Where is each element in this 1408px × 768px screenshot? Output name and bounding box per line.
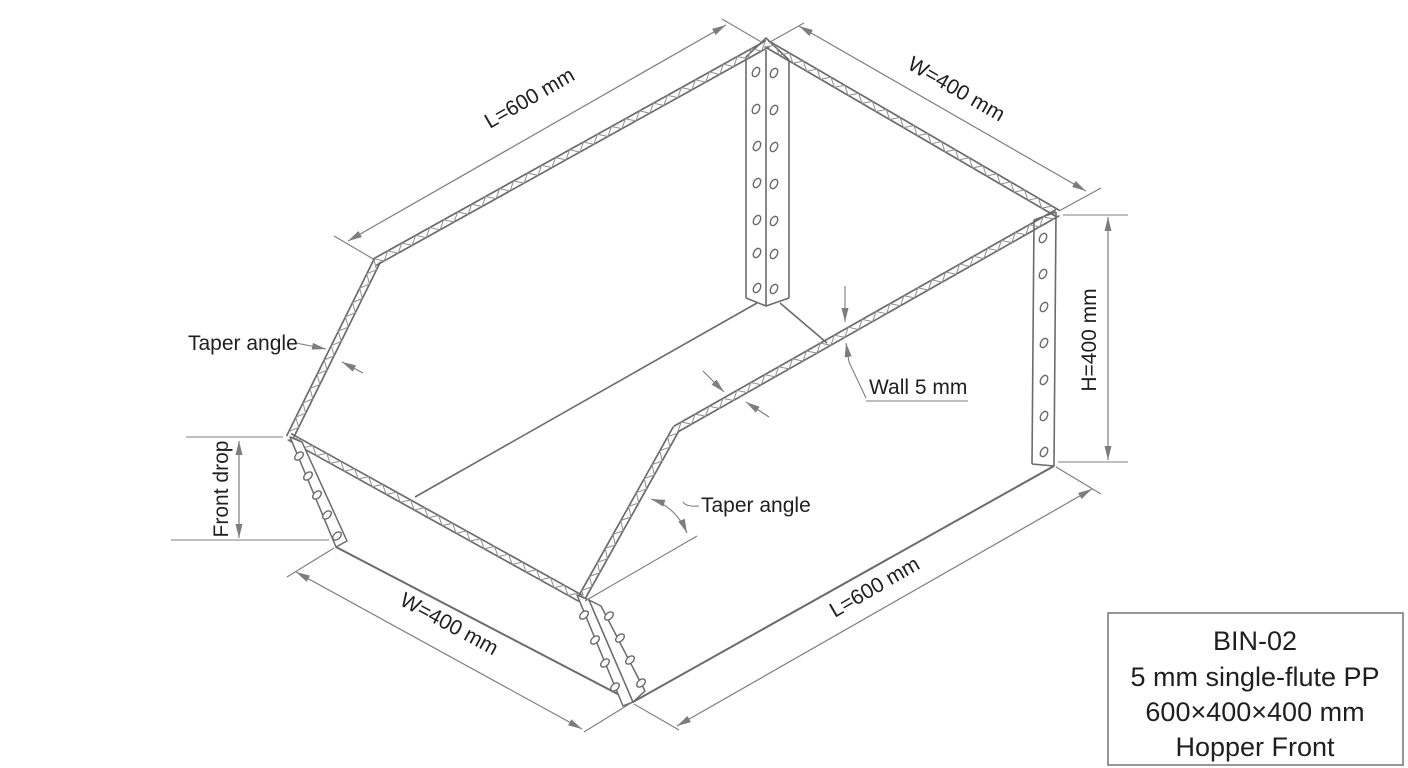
title-front-style: Hopper Front bbox=[1175, 732, 1335, 762]
right-wall-back-edge bbox=[1032, 212, 1056, 466]
stitch-holes-back-corner-right bbox=[769, 67, 780, 295]
left-wall-floor-junction bbox=[415, 303, 757, 497]
back-corner-post bbox=[746, 38, 789, 306]
callout-taper-angle-right: Taper angle bbox=[585, 494, 811, 601]
stitch-holes-right-back bbox=[1038, 232, 1050, 458]
dim-label-length-bottom: L=600 mm bbox=[826, 552, 924, 622]
callout-wall-thickness: Wall 5 mm bbox=[703, 286, 968, 417]
dim-label-front-drop: Front drop bbox=[210, 441, 233, 538]
dim-width-front: W=400 mm bbox=[287, 548, 631, 732]
dim-width-back: W=400 mm bbox=[770, 23, 1101, 211]
callout-label-taper-left: Taper angle bbox=[188, 332, 298, 355]
title-block: BIN-02 5 mm single-flute PP 600×400×400 … bbox=[1108, 613, 1403, 765]
title-part-id: BIN-02 bbox=[1213, 626, 1297, 656]
front-left-edge bbox=[290, 437, 347, 547]
left-wall-taper-edge bbox=[287, 259, 380, 438]
isometric-bin-drawing: L=600 mm W=400 mm H=400 mm W=400 mm L=60… bbox=[0, 0, 1408, 768]
callout-label-wall: Wall 5 mm bbox=[869, 376, 967, 399]
title-material: 5 mm single-flute PP bbox=[1130, 662, 1379, 692]
interior-lines bbox=[415, 303, 827, 497]
callout-taper-angle-left: Taper angle bbox=[188, 332, 363, 373]
back-wall-floor-junction bbox=[780, 303, 827, 343]
drawing-canvas: L=600 mm W=400 mm H=400 mm W=400 mm L=60… bbox=[0, 0, 1408, 768]
title-overall-size: 600×400×400 mm bbox=[1145, 697, 1364, 727]
dim-length-top: L=600 mm bbox=[334, 19, 763, 260]
right-wall-taper-edge bbox=[578, 427, 679, 600]
front-right-edge bbox=[577, 595, 647, 706]
dim-label-width-back: W=400 mm bbox=[904, 52, 1009, 126]
dim-label-length-top: L=600 mm bbox=[481, 63, 579, 133]
dim-height: H=400 mm bbox=[1058, 215, 1128, 462]
dim-label-height: H=400 mm bbox=[1078, 288, 1101, 391]
callout-label-taper-right: Taper angle bbox=[701, 494, 811, 517]
front-bottom-edge bbox=[336, 466, 1054, 702]
stitch-holes-back-corner-left bbox=[751, 66, 763, 294]
right-wall-top-edge bbox=[674, 210, 1058, 432]
